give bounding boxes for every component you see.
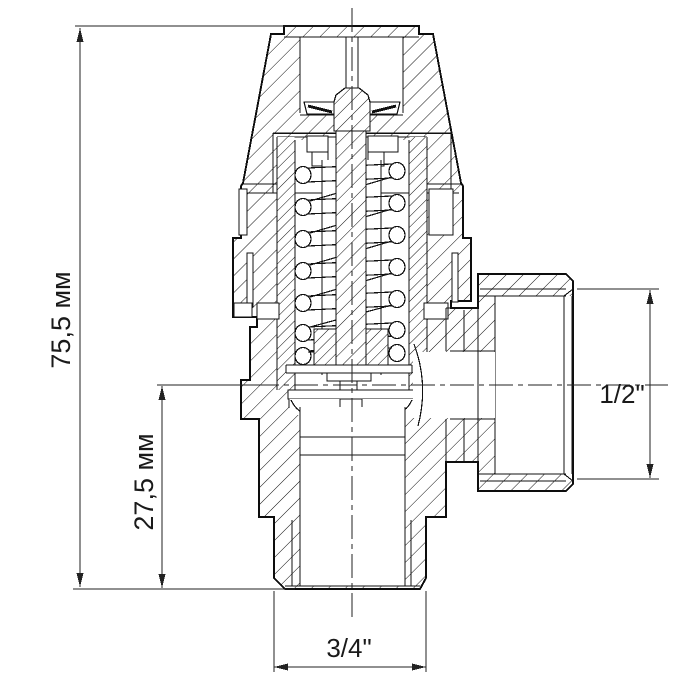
svg-text:27,5 мм: 27,5 мм: [129, 433, 159, 530]
svg-text:75,5 мм: 75,5 мм: [46, 271, 76, 368]
svg-text:3/4": 3/4": [326, 633, 371, 663]
svg-text:1/2": 1/2": [599, 379, 644, 409]
